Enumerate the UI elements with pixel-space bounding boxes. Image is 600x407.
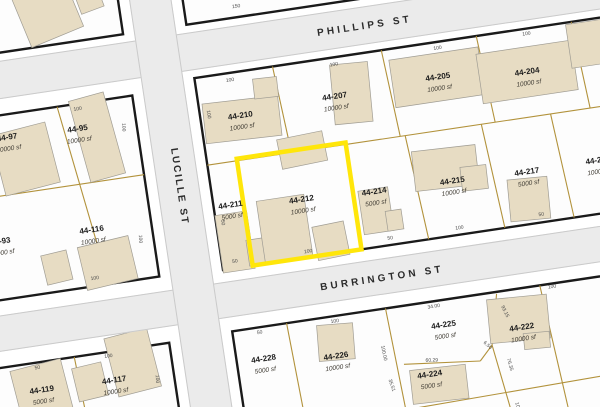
parcel-label-44-211[interactable]: 44-2115000 sf (218, 200, 245, 223)
parcel-number: 44-225 (431, 319, 457, 331)
parcel-label-44-222[interactable]: 44-22210000 sf (509, 322, 537, 345)
parcel-number: 44-214 (361, 186, 387, 198)
parcel-number: 44-226 (323, 351, 349, 363)
building-footprint (385, 209, 404, 231)
parcel-number: 44-207 (322, 91, 348, 103)
parcel-label-44-119[interactable]: 44-1195000 sf (29, 385, 56, 407)
parcel-label-44-225[interactable]: 44-2255000 sf (431, 319, 459, 342)
parcel-label-44-93[interactable]: 44-9310000 sf (0, 236, 15, 259)
parcel-label-44-116[interactable]: 44-11610000 sf (79, 224, 107, 247)
parcel-number: 44-215 (440, 176, 466, 188)
parcel-label-44-212[interactable]: 44-21210000 sf (289, 194, 317, 217)
parcel-number: 44-93 (0, 236, 13, 248)
street-label-lucille: LUCILLE ST (168, 147, 190, 226)
parcel-number: 44-205 (425, 72, 451, 84)
parcel-map-canvas[interactable]: PHILLIPS ST BURRINGTON ST LUCILLE ST 44-… (0, 0, 600, 407)
parcel-number: 44-119 (29, 385, 54, 397)
parcel-number: 44-211 (218, 200, 243, 212)
parcel-number: 44-224 (417, 369, 443, 381)
parcel-label-44-219[interactable]: 44-21910000 sf (585, 155, 600, 178)
parcel-label-44-204[interactable]: 44-20410000 sf (514, 66, 542, 89)
building-footprint (252, 76, 278, 99)
parcel-number: 44-228 (251, 353, 277, 365)
parcel-area: 10000 sf (587, 168, 600, 178)
parcel-label-44-207[interactable]: 44-20710000 sf (322, 91, 350, 114)
parcel-number: 44-219 (585, 155, 600, 167)
parcel-number: 44-217 (514, 166, 540, 178)
parcel-label-44-214[interactable]: 44-2145000 sf (361, 186, 389, 209)
parcel-label-44-117[interactable]: 44-11710000 sf (101, 375, 129, 398)
parcel-label-44-217[interactable]: 44-2175000 sf (514, 166, 542, 189)
parcel-number: 44-97 (0, 132, 20, 144)
street-label-phillips: PHILLIPS ST (316, 14, 412, 39)
parcel-label-44-215[interactable]: 44-21510000 sf (440, 176, 468, 199)
parcel-label-44-205[interactable]: 44-20510000 sf (425, 72, 453, 95)
parcel-number: 44-212 (289, 194, 315, 206)
building-footprint (566, 16, 600, 68)
parcel-number: 44-95 (65, 123, 91, 135)
parcel-number: 44-222 (509, 322, 535, 334)
parcel-label-44-210[interactable]: 44-21010000 sf (228, 110, 256, 133)
map-rotated-frame: PHILLIPS ST BURRINGTON ST LUCILLE ST 44-… (0, 0, 600, 407)
parcel-label-44-228[interactable]: 44-2285000 sf (251, 353, 279, 376)
parcel-number: 44-116 (79, 224, 105, 236)
parcel-label-44-224[interactable]: 44-2245000 sf (417, 369, 445, 392)
parcel-number: 44-210 (228, 110, 254, 122)
parcel-number: 44-204 (514, 66, 540, 78)
parcel-label-44-97[interactable]: 44-9710000 sf (0, 132, 22, 155)
parcel-number: 44-117 (101, 375, 127, 387)
parcel-label-44-226[interactable]: 44-22610000 sf (323, 351, 351, 374)
parcel-label-44-95[interactable]: 44-9510000 sf (65, 123, 93, 146)
